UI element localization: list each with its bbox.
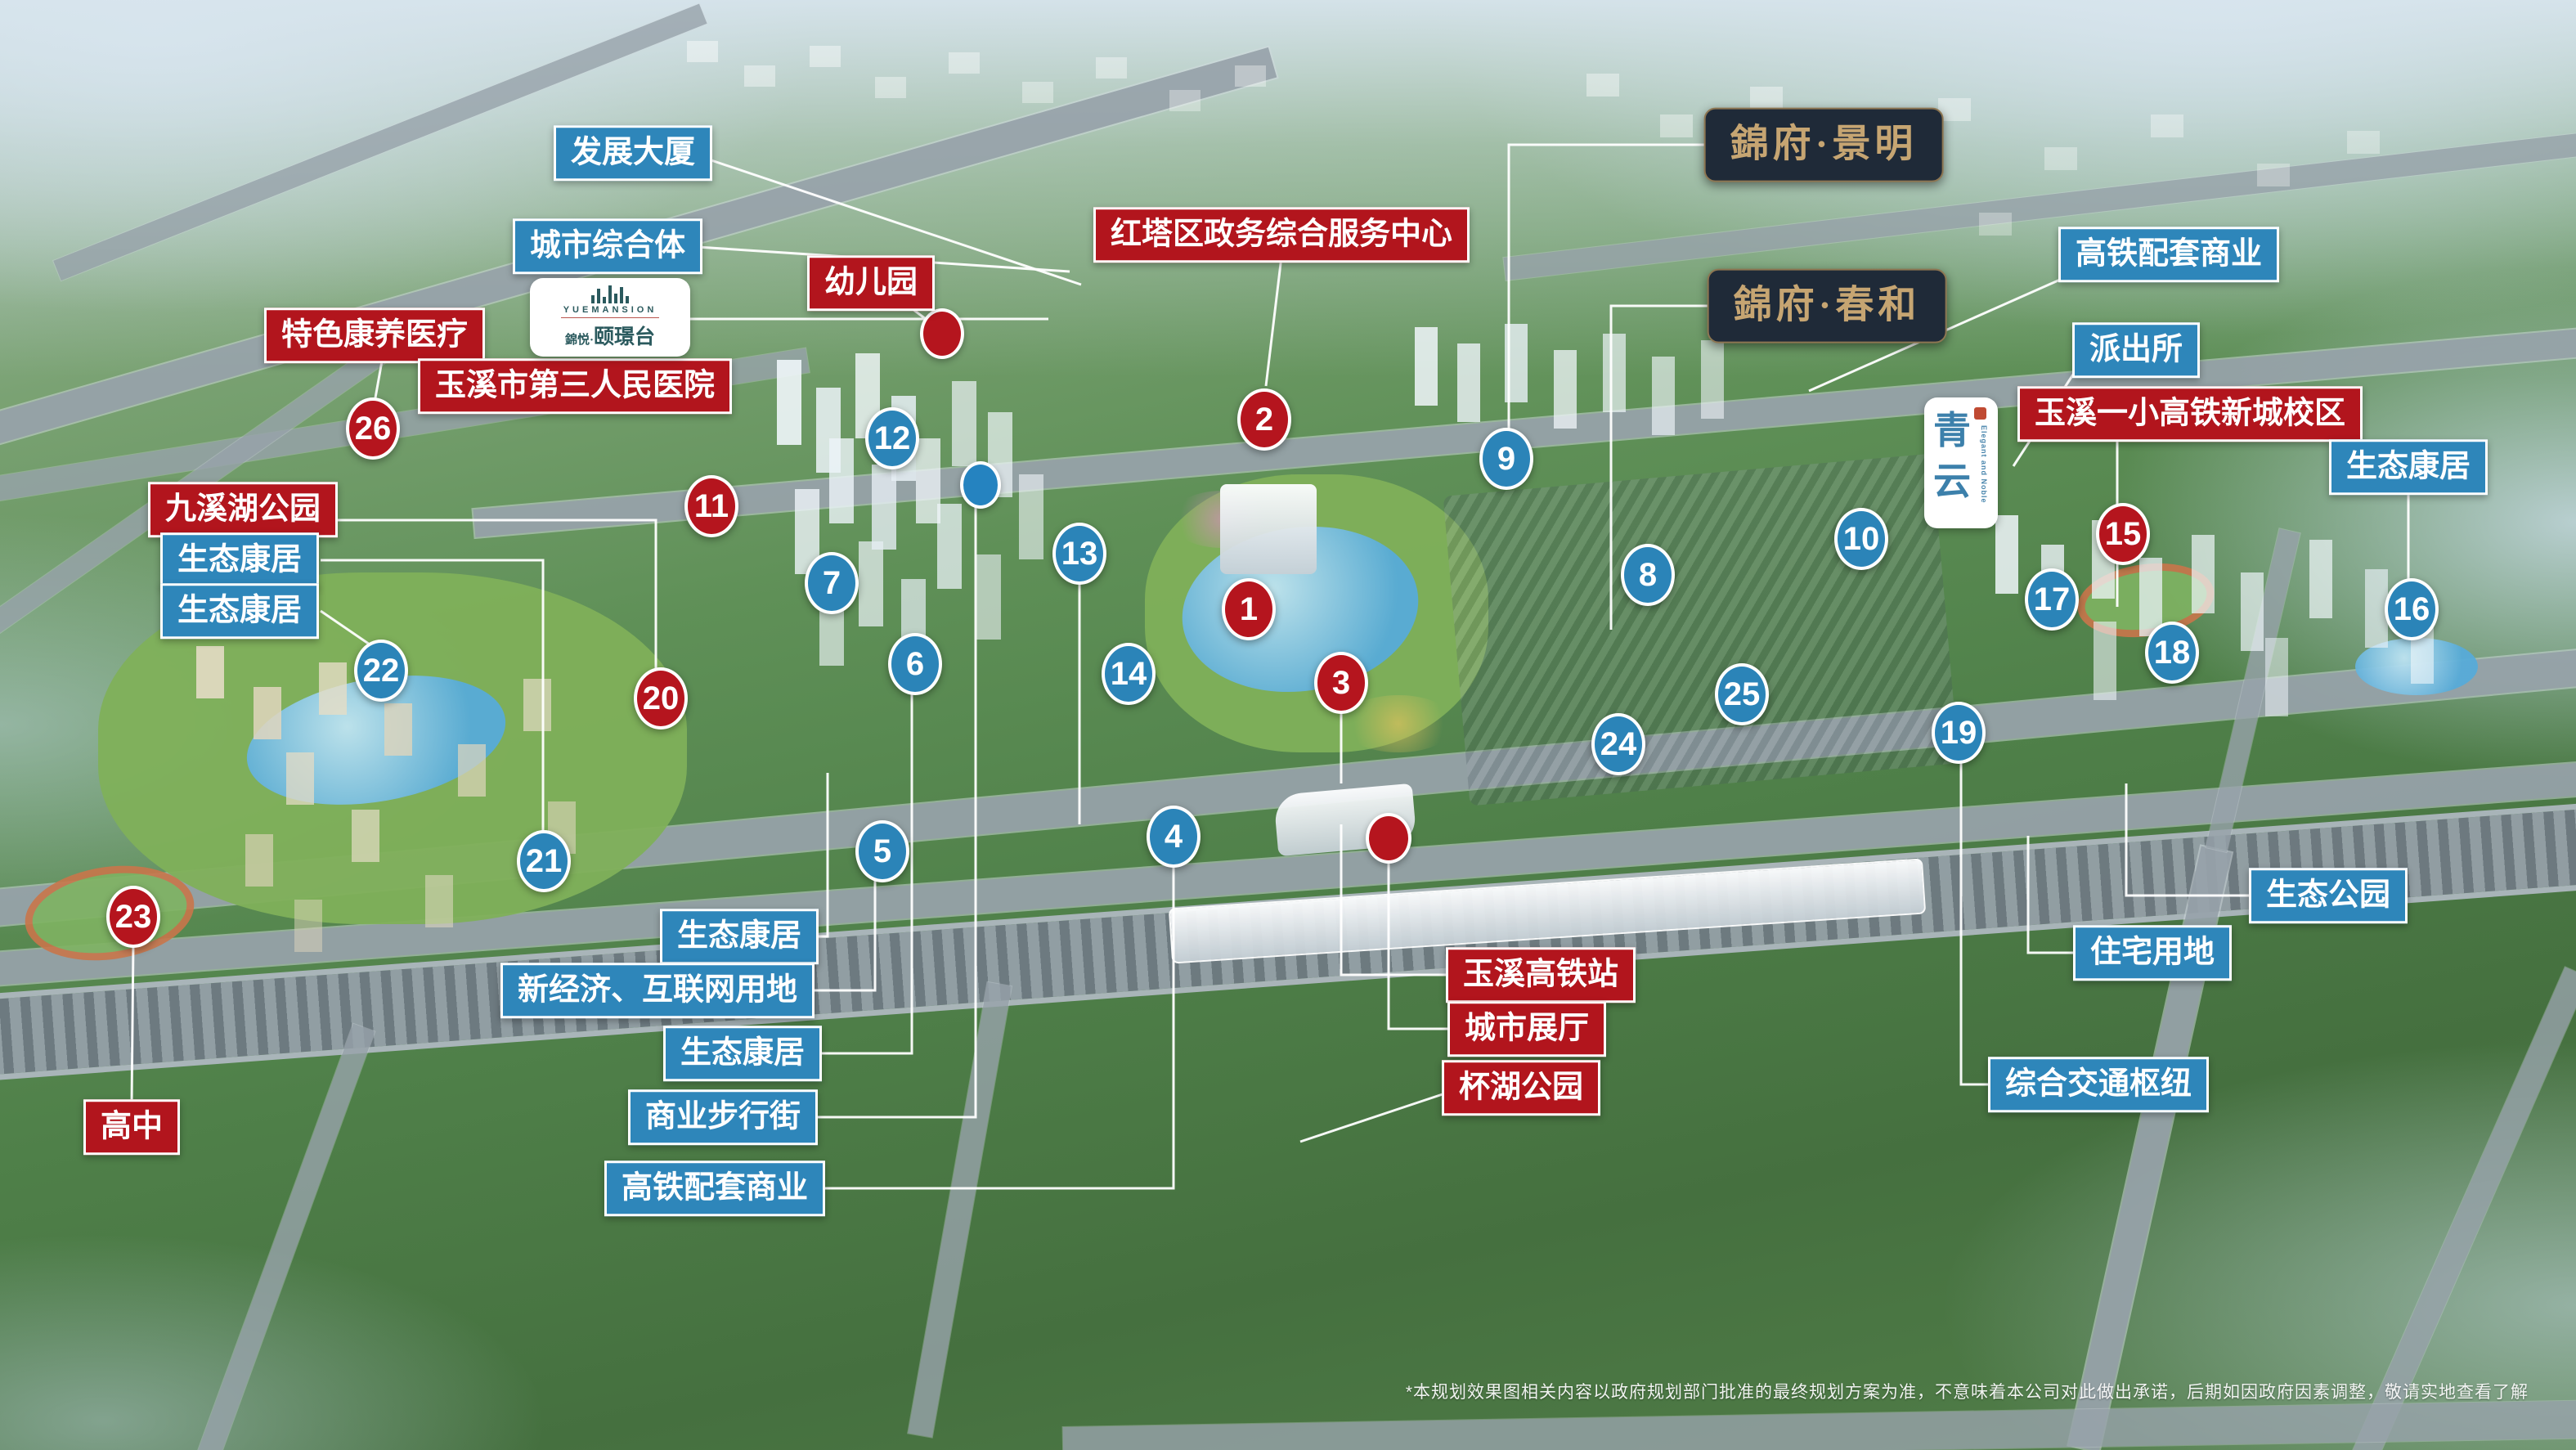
disclaimer-text: *本规划效果图相关内容以政府规划部门批准的最终规划方案为准，不意味着本公司对此做… [1406, 1379, 2529, 1403]
connector-line [2126, 783, 2259, 896]
map-label-blue: 生态康居 [160, 532, 319, 588]
map-label-blue: 发展大厦 [554, 125, 712, 181]
map-label-blue: 生态康居 [160, 583, 319, 639]
map-marker-4: 4 [1147, 806, 1200, 868]
map-label-red: 玉溪一小高铁新城校区 [2017, 386, 2363, 442]
map-label-red: 高中 [83, 1099, 180, 1155]
connector-line [132, 942, 133, 1104]
map-label-red: 玉溪市第三人民医院 [418, 358, 732, 414]
map-marker-11: 11 [684, 475, 738, 537]
map-marker-5: 5 [855, 820, 909, 882]
map-marker-1: 1 [1222, 578, 1276, 640]
map-marker-18: 18 [2145, 622, 2199, 684]
map-label-blue: 商业步行街 [628, 1089, 818, 1145]
map-marker-9: 9 [1479, 428, 1533, 490]
logo-divider [561, 317, 659, 318]
map-marker-12: 12 [865, 407, 919, 469]
qingyun-logo-cn: 青云 [1932, 406, 1972, 507]
map-marker-25: 25 [1715, 663, 1769, 725]
map-label-blue: 住宅用地 [2073, 925, 2232, 981]
map-label-blue: 高铁配套商业 [2058, 227, 2279, 282]
map-marker-20: 20 [634, 667, 688, 729]
map-marker-13: 13 [1052, 523, 1106, 585]
connector-line [1300, 1093, 1447, 1142]
map-marker-17: 17 [2025, 568, 2079, 631]
yuemansion-logo-cn: 錦悦·颐璟台 [565, 321, 655, 350]
qingyun-logo-en: Elegant and Noble [1980, 425, 1988, 504]
map-marker-15: 15 [2096, 503, 2150, 565]
map-label-blue: 生态康居 [2329, 439, 2488, 495]
map-marker-26: 26 [346, 397, 400, 460]
map-label-blue: 高铁配套商业 [604, 1160, 825, 1216]
map-label-blue: 城市综合体 [513, 218, 702, 274]
poi-dot-red [1366, 813, 1411, 864]
map-label-red: 九溪湖公园 [148, 482, 338, 537]
map-marker-8: 8 [1621, 544, 1675, 606]
map-marker-7: 7 [805, 552, 859, 614]
qingyun-logo-card: 青云 Elegant and Noble [1924, 397, 1998, 528]
map-marker-23: 23 [106, 886, 160, 948]
connector-line [792, 864, 1174, 1188]
map-marker-3: 3 [1314, 652, 1368, 714]
yuemansion-logo-cn-prefix: 錦悦· [565, 334, 594, 347]
map-label-red: 杯湖公园 [1442, 1060, 1600, 1116]
qingyun-red-seal-icon [1974, 407, 1986, 420]
map-marker-16: 16 [2385, 578, 2439, 640]
map-label-blue: 生态公园 [2249, 868, 2408, 923]
map-label-red: 幼儿园 [807, 255, 935, 311]
connector-line [1266, 257, 1281, 386]
yuemansion-logo-card: YUEMANSION 錦悦·颐璟台 [530, 278, 690, 357]
yuemansion-building-bars-icon [591, 285, 629, 303]
map-label-brand: 錦府·景明 [1704, 108, 1944, 182]
connector-line [375, 357, 383, 402]
map-label-red: 玉溪高铁站 [1446, 947, 1636, 1003]
map-marker-19: 19 [1932, 702, 1986, 764]
masterplan-map: 1234567891011121314151617181920212223242… [0, 0, 2576, 1450]
map-label-blue: 派出所 [2072, 322, 2200, 378]
map-marker-22: 22 [354, 640, 408, 702]
connector-line [321, 611, 370, 644]
map-marker-10: 10 [1834, 508, 1888, 570]
map-label-brand: 錦府·春和 [1708, 269, 1947, 343]
map-marker-6: 6 [888, 633, 942, 695]
map-label-red: 特色康养医疗 [264, 308, 485, 363]
map-label-blue: 综合交通枢纽 [1988, 1057, 2209, 1112]
poi-dot-blue [960, 461, 1001, 509]
map-marker-21: 21 [517, 830, 571, 892]
connector-line [1509, 145, 1719, 435]
map-label-red: 城市展厅 [1447, 1001, 1606, 1057]
map-label-blue: 生态康居 [660, 909, 819, 964]
yuemansion-logo-en: YUEMANSION [563, 305, 657, 315]
map-marker-14: 14 [1102, 643, 1156, 705]
connector-line [1961, 756, 1997, 1084]
map-marker-24: 24 [1591, 713, 1645, 775]
connector-line [321, 560, 543, 833]
poi-dot-red [920, 308, 964, 359]
yuemansion-logo-cn-name: 颐璟台 [594, 326, 655, 348]
map-label-red: 红塔区政务综合服务中心 [1093, 207, 1470, 263]
connector-line [1389, 859, 1449, 1029]
map-label-blue: 新经济、互联网用地 [500, 963, 815, 1018]
map-label-blue: 生态康居 [663, 1026, 822, 1081]
map-marker-2: 2 [1237, 388, 1291, 451]
